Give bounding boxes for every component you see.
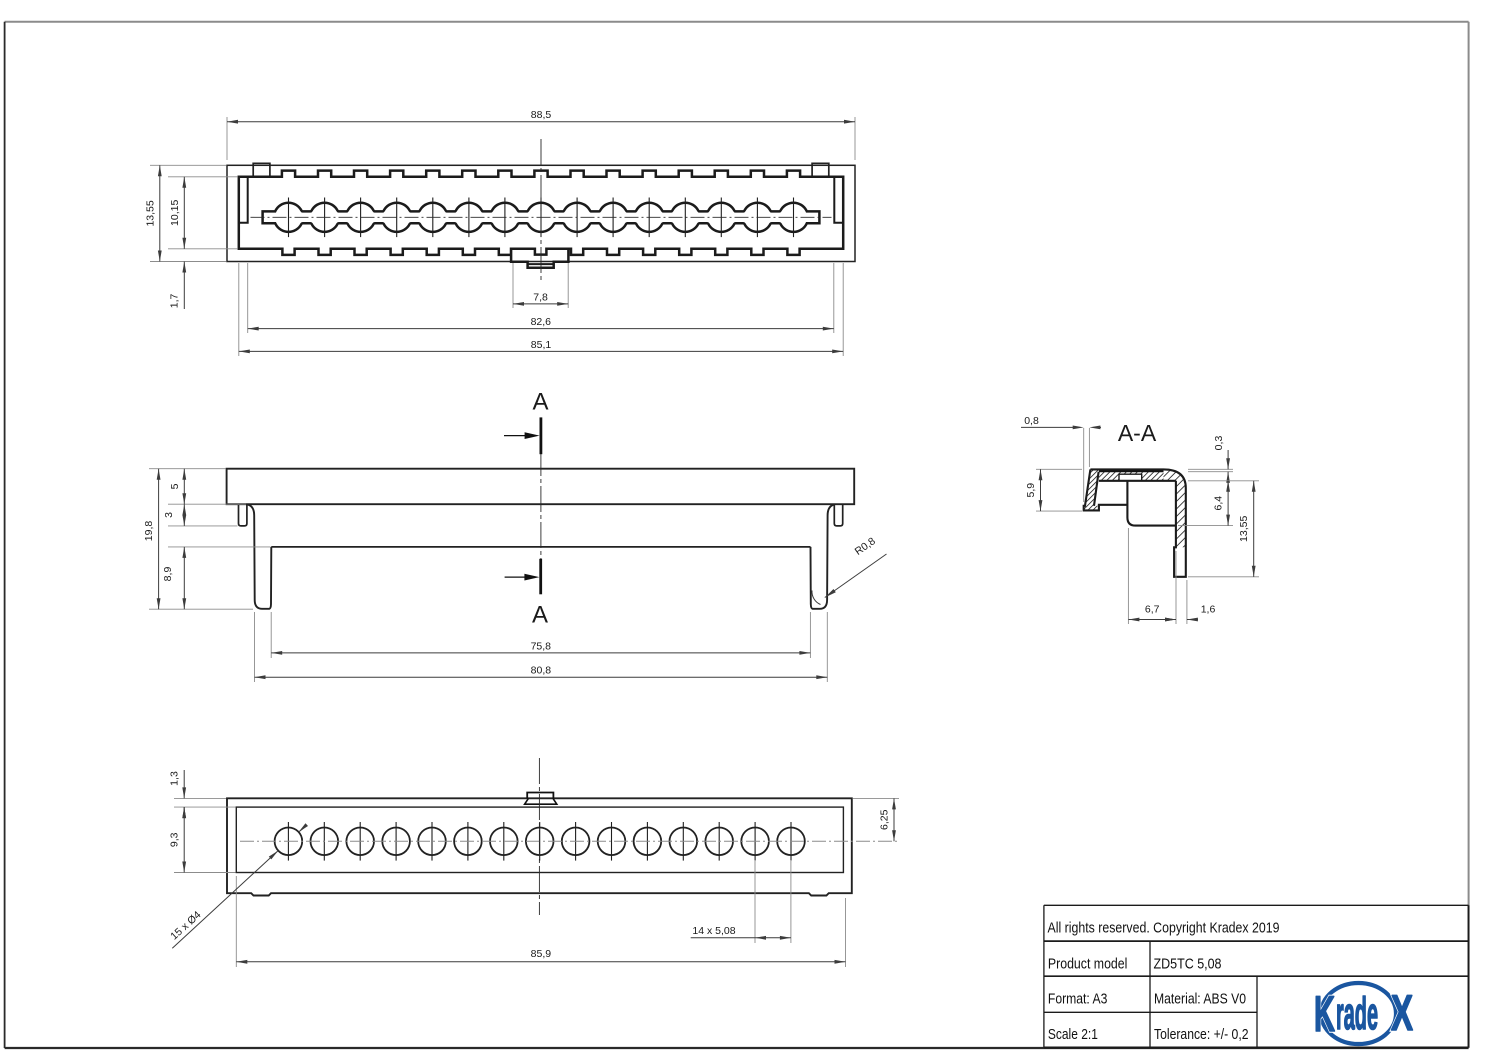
svg-text:0,8: 0,8 [1024,415,1039,427]
svg-text:All rights reserved. Copyright: All rights reserved. Copyright Kradex 20… [1048,920,1280,937]
svg-text:A: A [532,602,548,629]
svg-text:X: X [1391,985,1413,1041]
svg-text:6,7: 6,7 [1145,604,1160,616]
svg-text:10,15: 10,15 [169,200,181,226]
svg-text:8,9: 8,9 [162,567,174,582]
svg-text:5,9: 5,9 [1025,483,1037,498]
svg-text:rade: rade [1336,988,1378,1039]
svg-text:75,8: 75,8 [531,640,552,652]
svg-text:85,9: 85,9 [531,948,552,960]
svg-text:A-A: A-A [1118,420,1157,446]
svg-text:82,6: 82,6 [531,316,552,328]
svg-text:Material: ABS V0: Material: ABS V0 [1154,990,1246,1007]
svg-text:1,7: 1,7 [168,293,180,308]
svg-text:3: 3 [163,512,175,518]
svg-text:1,3: 1,3 [169,771,181,786]
svg-text:13,55: 13,55 [144,200,156,226]
svg-text:6,4: 6,4 [1213,496,1225,511]
svg-text:13,55: 13,55 [1238,516,1250,542]
svg-text:Tolerance: +/- 0,2: Tolerance: +/- 0,2 [1154,1026,1249,1043]
svg-text:7,8: 7,8 [533,291,548,303]
svg-text:0,3: 0,3 [1213,436,1225,451]
svg-text:K: K [1314,986,1335,1042]
svg-text:5: 5 [169,483,181,489]
svg-text:Format: A3: Format: A3 [1048,990,1108,1007]
svg-text:19,8: 19,8 [143,521,155,542]
svg-text:A: A [532,389,548,416]
svg-text:80,8: 80,8 [531,665,552,677]
svg-text:6,25: 6,25 [879,809,891,830]
svg-text:ZD5TC 5,08: ZD5TC 5,08 [1154,955,1222,972]
svg-text:14 x 5,08: 14 x 5,08 [692,925,735,937]
svg-text:Product model: Product model [1048,955,1128,972]
svg-text:1,6: 1,6 [1201,604,1216,616]
svg-text:88,5: 88,5 [531,109,552,121]
svg-text:85,1: 85,1 [531,339,552,351]
svg-text:9,3: 9,3 [169,832,181,847]
svg-text:Scale 2:1: Scale 2:1 [1048,1026,1098,1043]
